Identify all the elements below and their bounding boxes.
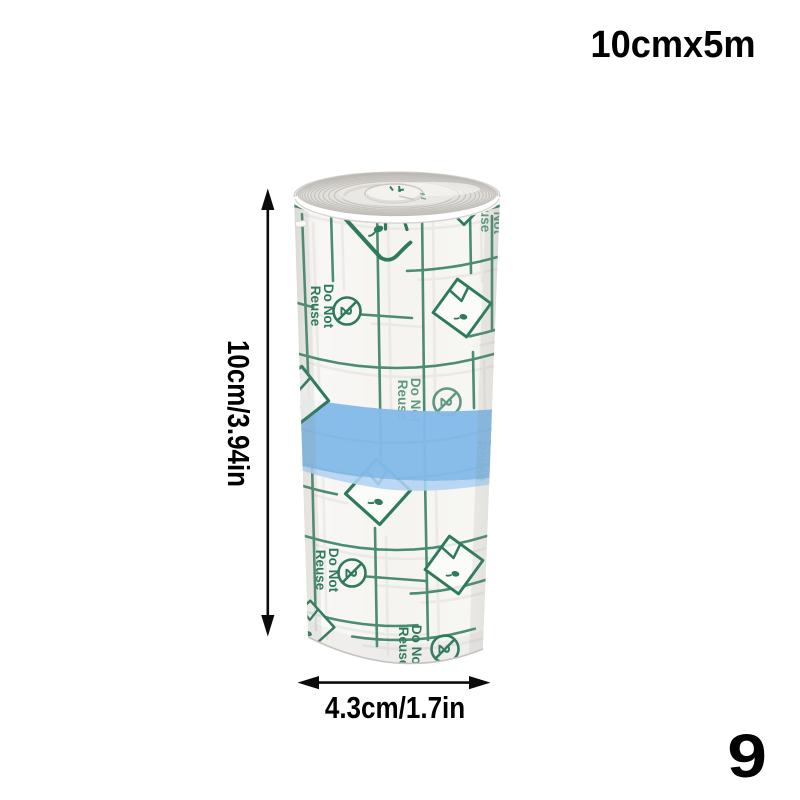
svg-text:9: 9	[727, 723, 767, 791]
svg-text:10cm/3.94in: 10cm/3.94in	[221, 340, 256, 487]
svg-text:10cmx5m: 10cmx5m	[591, 24, 756, 66]
svg-text:4.3cm/1.7in: 4.3cm/1.7in	[325, 691, 465, 726]
